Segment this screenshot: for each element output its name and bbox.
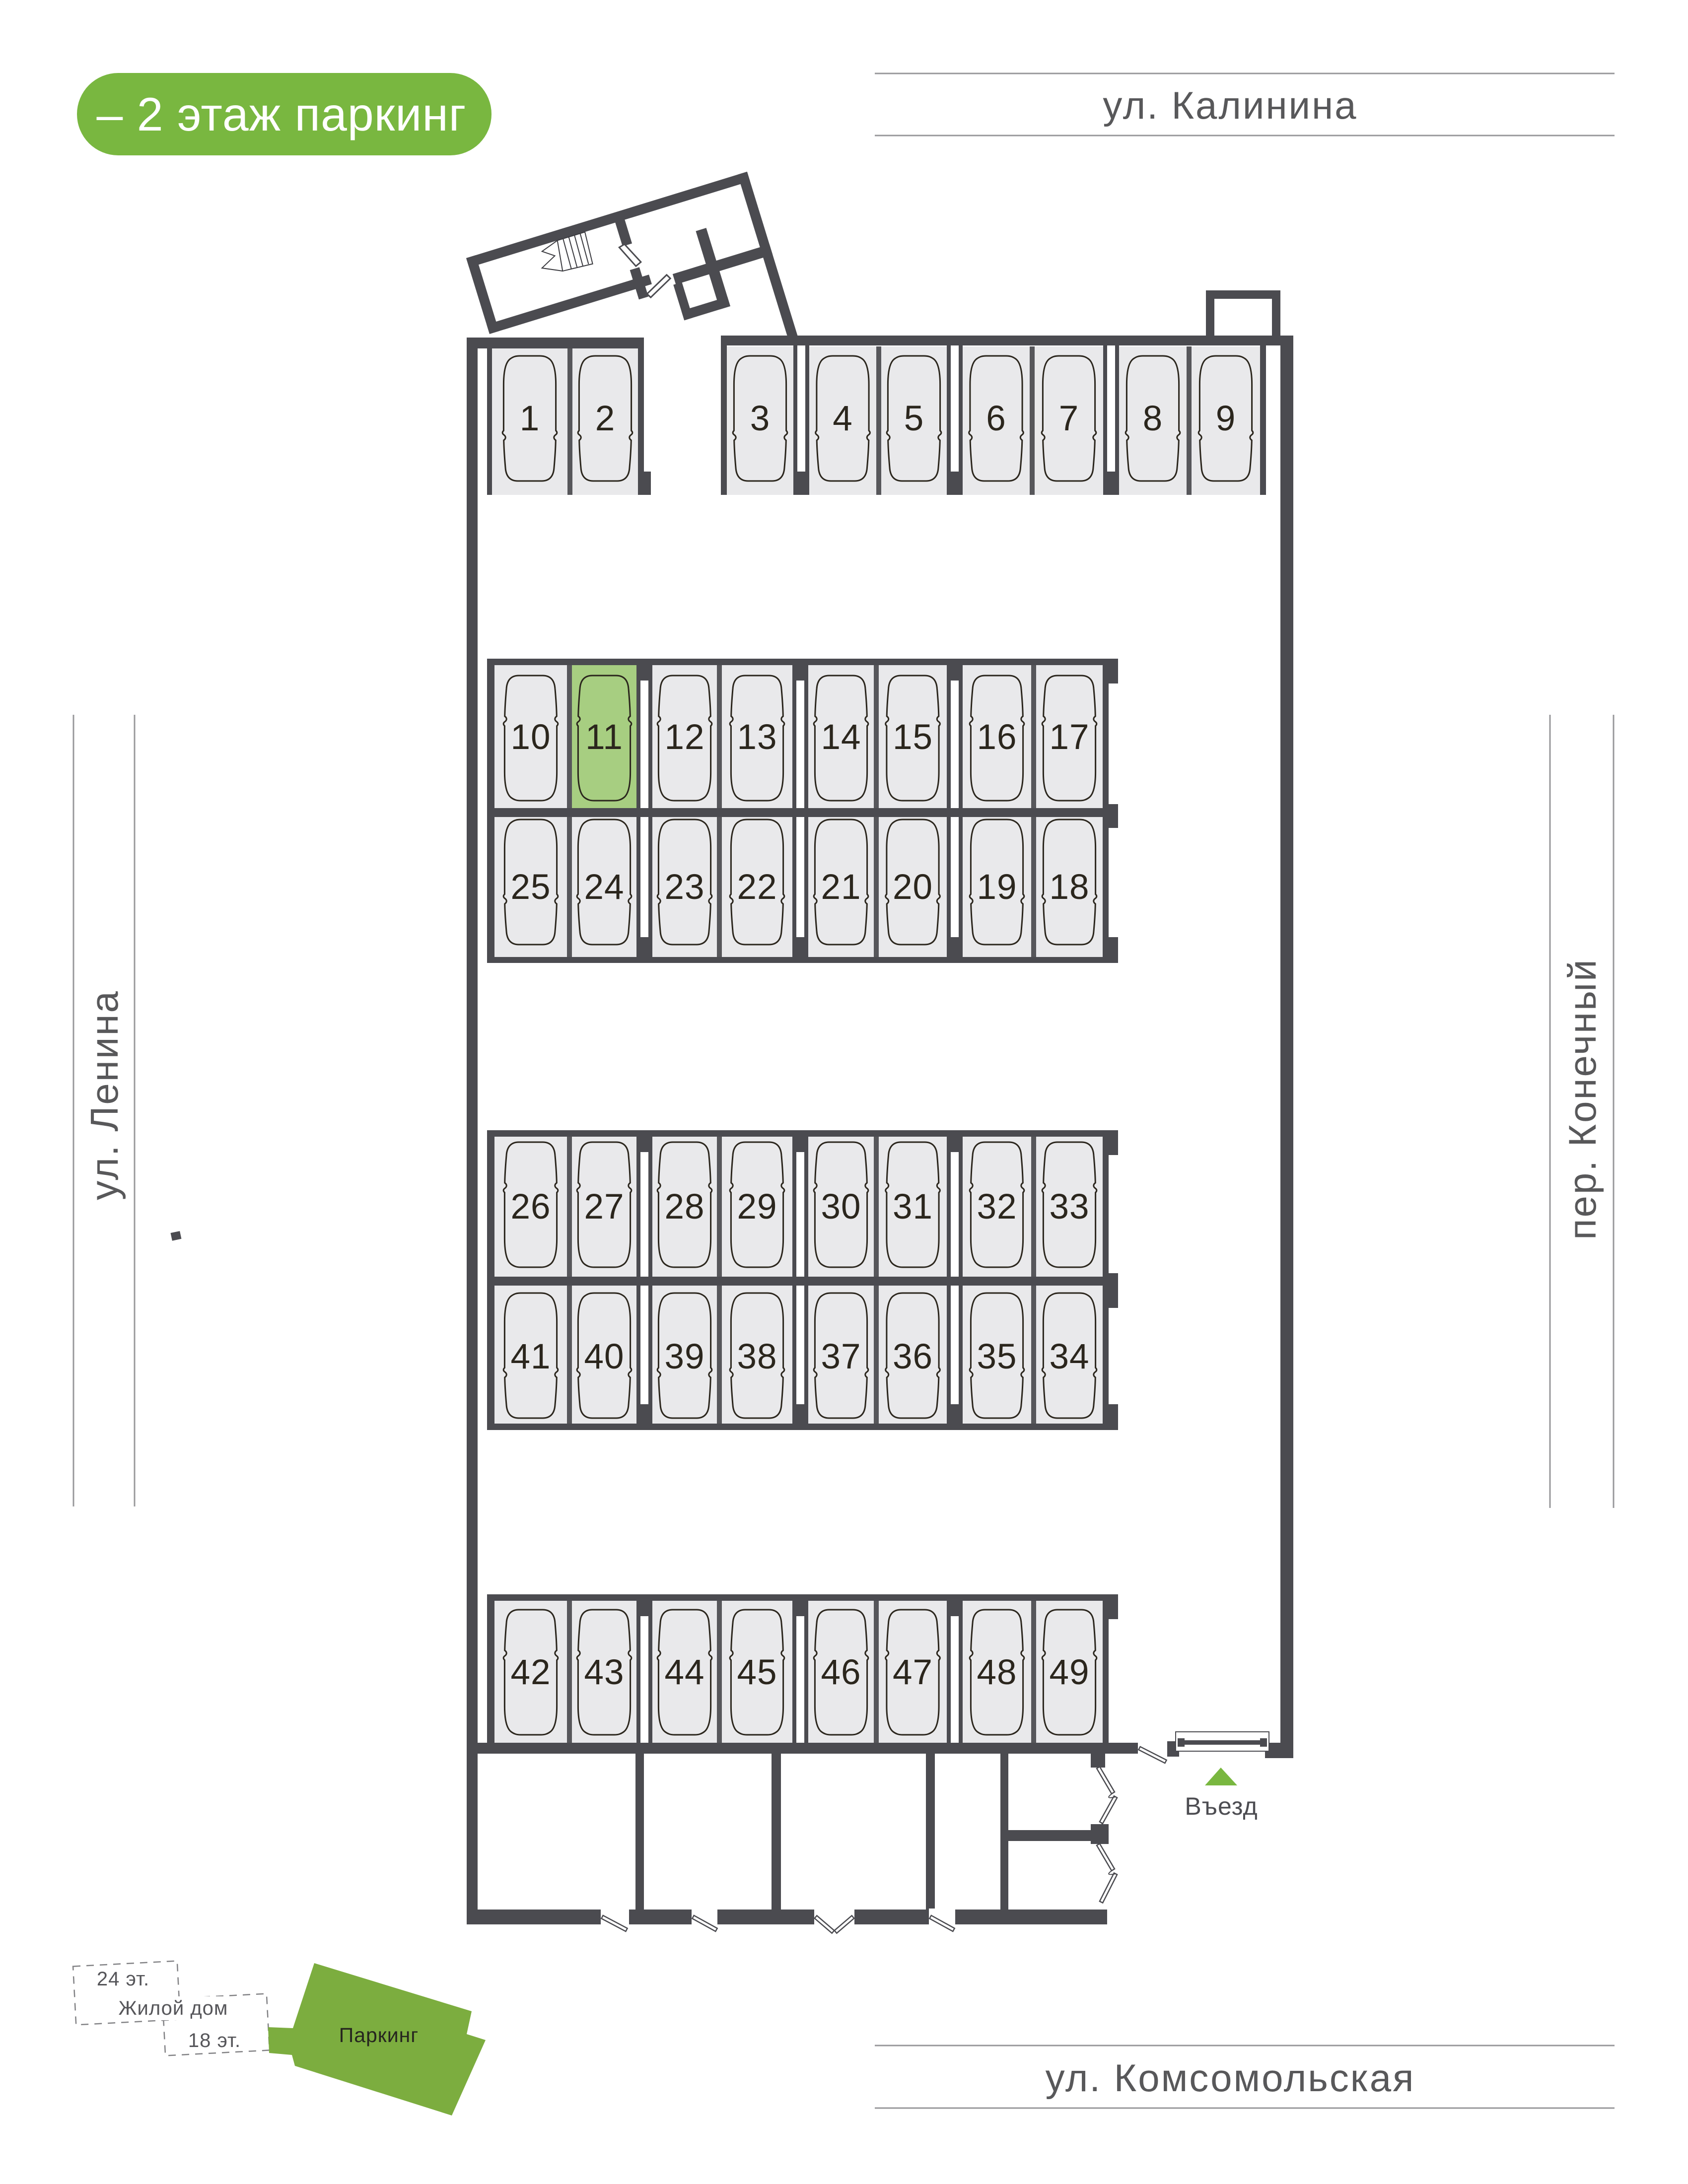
svg-text:48: 48 (977, 1653, 1017, 1692)
svg-text:Жилой дом: Жилой дом (119, 1997, 228, 2019)
svg-text:20: 20 (893, 868, 933, 907)
svg-text:42: 42 (511, 1653, 551, 1692)
svg-text:18 эт.: 18 эт. (188, 2030, 241, 2051)
svg-text:23: 23 (665, 868, 705, 907)
svg-text:5: 5 (904, 399, 924, 438)
svg-text:33: 33 (1050, 1187, 1090, 1227)
svg-text:ул. Калинина: ул. Калинина (1103, 83, 1357, 127)
svg-text:4: 4 (833, 399, 853, 438)
svg-text:15: 15 (893, 718, 933, 757)
svg-text:25: 25 (511, 868, 551, 907)
svg-text:40: 40 (584, 1337, 625, 1376)
svg-text:21: 21 (821, 868, 861, 907)
svg-text:32: 32 (977, 1187, 1017, 1227)
svg-text:49: 49 (1050, 1653, 1090, 1692)
svg-text:28: 28 (665, 1187, 705, 1227)
svg-text:45: 45 (737, 1653, 777, 1692)
svg-text:34: 34 (1050, 1337, 1090, 1376)
svg-text:пер. Конечный: пер. Конечный (1560, 958, 1604, 1239)
svg-text:ул. Ленина: ул. Ленина (82, 990, 126, 1200)
svg-text:37: 37 (821, 1337, 861, 1376)
svg-text:19: 19 (977, 868, 1017, 907)
svg-text:14: 14 (821, 718, 861, 757)
svg-text:44: 44 (665, 1653, 705, 1692)
svg-text:47: 47 (893, 1653, 933, 1692)
svg-text:18: 18 (1050, 868, 1090, 907)
svg-text:38: 38 (737, 1337, 777, 1376)
svg-text:39: 39 (665, 1337, 705, 1376)
svg-text:30: 30 (821, 1187, 861, 1227)
svg-text:26: 26 (511, 1187, 551, 1227)
svg-text:43: 43 (584, 1653, 625, 1692)
svg-text:12: 12 (665, 718, 705, 757)
svg-text:– 2 этаж паркинг: – 2 этаж паркинг (97, 88, 467, 141)
svg-text:17: 17 (1050, 718, 1090, 757)
svg-text:27: 27 (584, 1187, 625, 1227)
svg-text:35: 35 (977, 1337, 1017, 1376)
svg-text:16: 16 (977, 718, 1017, 757)
svg-text:24 эт.: 24 эт. (97, 1968, 149, 1990)
svg-text:31: 31 (893, 1187, 933, 1227)
svg-text:46: 46 (821, 1653, 861, 1692)
svg-text:11: 11 (585, 718, 623, 757)
svg-text:ул. Комсомольская: ул. Комсомольская (1046, 2056, 1415, 2100)
svg-text:7: 7 (1059, 399, 1079, 438)
svg-text:10: 10 (511, 718, 551, 757)
svg-text:29: 29 (737, 1187, 777, 1227)
svg-text:13: 13 (737, 718, 777, 757)
svg-text:3: 3 (750, 399, 771, 438)
svg-text:9: 9 (1216, 399, 1236, 438)
svg-text:8: 8 (1143, 399, 1163, 438)
svg-text:41: 41 (511, 1337, 551, 1376)
svg-text:36: 36 (893, 1337, 933, 1376)
svg-text:2: 2 (595, 399, 616, 438)
svg-text:22: 22 (737, 868, 777, 907)
svg-text:1: 1 (520, 399, 540, 438)
svg-text:6: 6 (986, 399, 1006, 438)
svg-text:24: 24 (584, 868, 625, 907)
svg-text:Въезд: Въезд (1185, 1792, 1258, 1820)
svg-text:Паркинг: Паркинг (339, 2024, 419, 2047)
